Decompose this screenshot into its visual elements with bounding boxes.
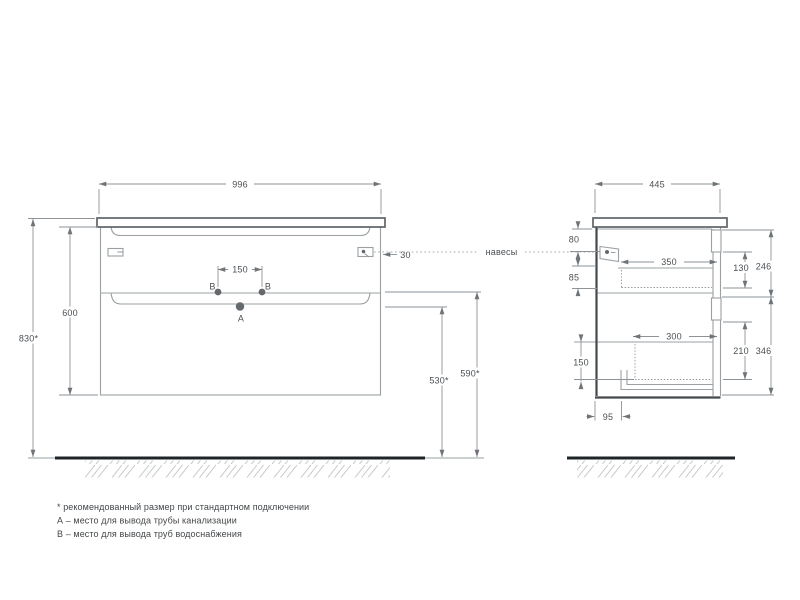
side-floor (567, 458, 735, 478)
supply-point-b-left (215, 289, 222, 296)
front-holes-spacing-label: 150 (232, 265, 248, 275)
front-total-height-label: 830* (19, 334, 39, 344)
front-width-label: 996 (232, 180, 248, 190)
side-floor-hatching (577, 461, 723, 478)
supply-height-label: 590* (460, 369, 480, 379)
drain-point-a (236, 302, 244, 310)
front-top-drawer-handle-groove (111, 227, 370, 236)
side-view: 445 (563, 179, 779, 478)
front-carcass (101, 227, 381, 395)
side-cabinet-body (574, 218, 727, 398)
front-left-hanger-bracket (108, 249, 123, 257)
side-dim-bottom-box-height: 150 (567, 335, 634, 389)
front-dim-width: 996 (99, 179, 381, 215)
side-bottom-drawer-box-dotted (635, 344, 712, 380)
bottom-drawer-depth-label: 300 (666, 332, 682, 342)
vanity-dimension-drawing: 996 150 (0, 0, 800, 600)
front-cabinet-height-label: 600 (62, 308, 78, 318)
note-point-a: А – место для вывода трубы канализации (57, 516, 237, 526)
hanger-top-offset-label: 80 (569, 235, 579, 245)
side-hanging-rail-middle (712, 298, 722, 320)
side-dim-top-drawer-depth: 350 (621, 256, 717, 267)
front-view: 996 150 (13, 179, 600, 478)
point-b-right-label: В (265, 282, 271, 292)
bottom-box-height-label: 150 (573, 358, 589, 368)
footnotes: * рекомендованный размер при стандартном… (57, 502, 309, 539)
hanger-callout: 30 навесы (374, 247, 600, 260)
side-countertop (593, 218, 727, 227)
note-asterisk: * рекомендованный размер при стандартном… (57, 502, 309, 512)
bottom-section-height-label: 346 (756, 346, 772, 356)
hanger-drawer-gap-label: 85 (569, 273, 579, 283)
side-dim-bottom-drawer-depth: 300 (633, 331, 717, 342)
top-drawer-depth-label: 350 (661, 257, 677, 267)
side-hanging-rail-top (712, 230, 722, 252)
front-connection-points: 150 В В А (209, 264, 271, 324)
side-dim-hanger-drawer-gap: 85 (563, 260, 598, 295)
point-a-label: А (238, 314, 244, 324)
note-point-b: В – место для вывода труб водоснабжения (57, 529, 242, 539)
side-dim-bottom-section-height: 346 (749, 297, 779, 395)
hangers-callout-label: навесы (486, 247, 518, 257)
drain-back-offset-label: 95 (603, 412, 613, 422)
bottom-drawer-inner-height-label: 210 (733, 346, 749, 356)
drain-height-label: 530* (429, 376, 449, 386)
side-dim-drain-back-offset: 95 (587, 401, 631, 422)
side-hanger-bracket (600, 247, 619, 262)
front-right-hanger-bracket (358, 248, 373, 258)
front-dim-cabinet-height: 600 (55, 227, 98, 395)
technical-drawing-page: 996 150 (0, 0, 800, 600)
front-countertop (97, 218, 385, 227)
front-floor (28, 458, 484, 478)
top-drawer-inner-height-label: 130 (733, 263, 749, 273)
top-section-height-label: 246 (756, 262, 772, 272)
side-dim-depth: 445 (595, 179, 720, 214)
point-b-left-label: В (209, 282, 215, 292)
front-dim-total-height: 830* (13, 219, 95, 458)
side-depth-label: 445 (649, 180, 665, 190)
front-floor-hatching (85, 461, 390, 478)
side-top-drawer-box-dotted (622, 270, 713, 288)
side-dim-top-section-height: 246 (749, 230, 779, 297)
side-right-extension-lines (722, 230, 774, 395)
front-dim-drain-height: 530* (385, 307, 454, 457)
hanger-offset-label: 30 (400, 250, 410, 260)
